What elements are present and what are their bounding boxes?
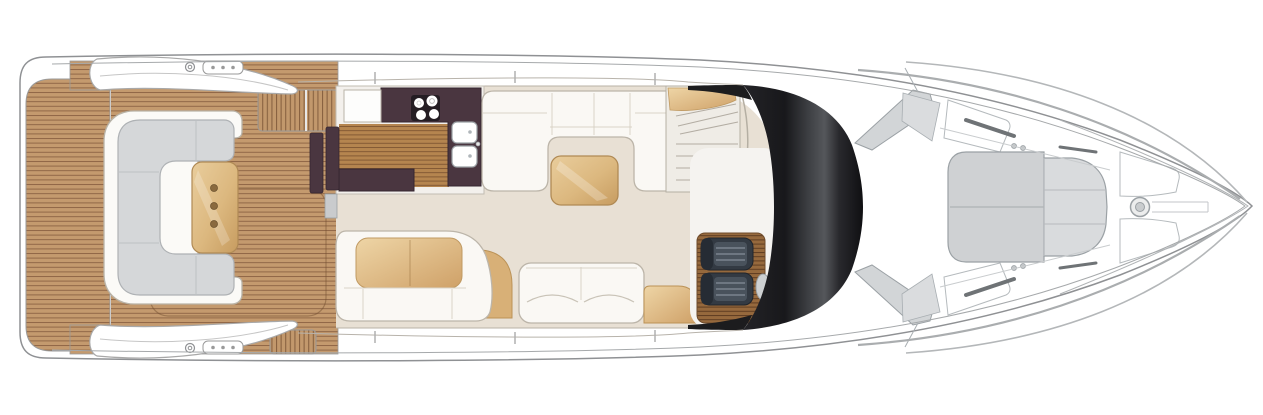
galley-counter-lower [339, 169, 414, 191]
helm-seat-2 [701, 273, 753, 305]
cooktop [411, 95, 440, 121]
two-seat-sofa [519, 263, 644, 323]
cockpit-table [192, 162, 238, 253]
side-cabinet [644, 286, 696, 323]
galley-cabinet-strip-2 [326, 127, 339, 190]
sliding-door-track [325, 194, 337, 218]
coffee-table [551, 156, 618, 205]
deck-plan-canvas [0, 0, 1263, 415]
side-deck-steps-port [258, 90, 338, 131]
deck-plan [0, 0, 1263, 415]
cockpit-sofa [104, 111, 242, 304]
galley-cabinet-strip-1 [310, 133, 323, 193]
galley-counter-white [344, 90, 381, 122]
helm-seat-1 [701, 238, 753, 270]
